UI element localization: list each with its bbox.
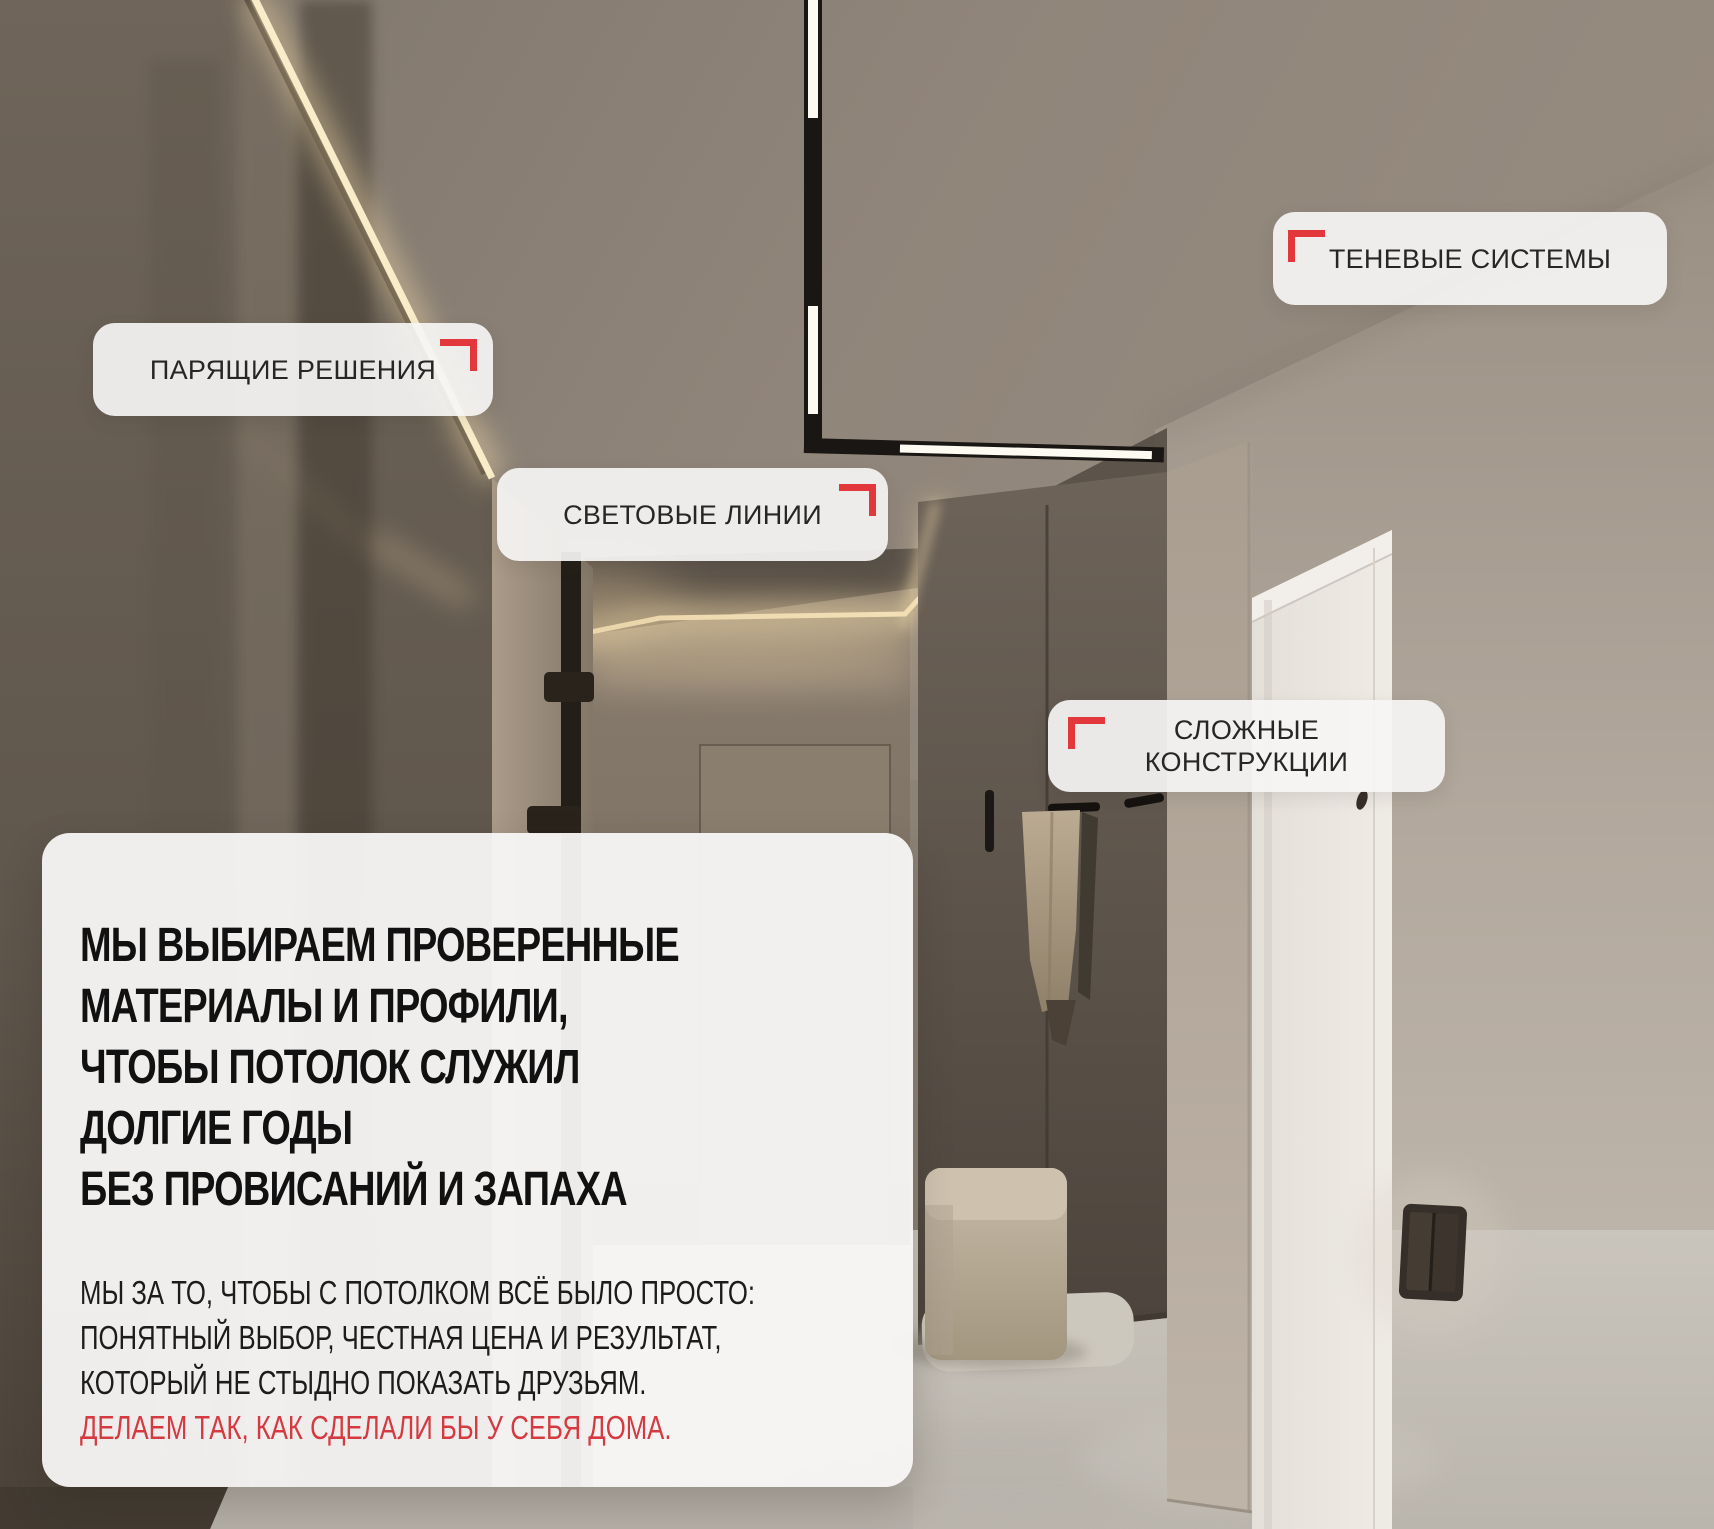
corner-bracket-icon (440, 339, 477, 371)
callout-light-lines: СВЕТОВЫЕ ЛИНИИ (497, 468, 888, 561)
callout-label: СЛОЖНЫЕ КОНСТРУКЦИИ (1145, 714, 1348, 778)
floor-under-panel (210, 1487, 913, 1529)
pouf (925, 1168, 1067, 1360)
callout-floating-solutions: ПАРЯЩИЕ РЕШЕНИЯ (93, 323, 493, 416)
white-door (1252, 530, 1392, 1529)
panel-body: МЫ ЗА ТО, ЧТОБЫ С ПОТОЛКОМ ВСЁ БЫЛО ПРОС… (80, 1270, 913, 1405)
panel-headline: МЫ ВЫБИРАЕМ ПРОВЕРЕННЫЕ МАТЕРИАЛЫ И ПРОФ… (80, 915, 913, 1220)
light-switch (1399, 1203, 1468, 1301)
callout-shadow-systems: ТЕНЕВЫЕ СИСТЕМЫ (1273, 212, 1667, 305)
promo-poster: ПАРЯЩИЕ РЕШЕНИЯ СВЕТОВЫЕ ЛИНИИ ТЕНЕВЫЕ С… (0, 0, 1714, 1529)
wall-column (1167, 440, 1252, 1512)
callout-label: СВЕТОВЫЕ ЛИНИИ (563, 499, 822, 531)
rod-clamp (544, 672, 594, 702)
callout-complex-constructions: СЛОЖНЫЕ КОНСТРУКЦИИ (1048, 700, 1445, 792)
wardrobe-handle (985, 790, 994, 852)
mirror-base-dark (0, 1487, 228, 1529)
corner-bracket-icon (839, 484, 876, 516)
panel-highlight: ДЕЛАЕМ ТАК, КАК СДЕЛАЛИ БЫ У СЕБЯ ДОМА. (80, 1405, 913, 1450)
panel-body-wrap: МЫ ЗА ТО, ЧТОБЫ С ПОТОЛКОМ ВСЁ БЫЛО ПРОС… (80, 1270, 913, 1450)
corner-bracket-icon (1288, 230, 1325, 262)
callout-label: ТЕНЕВЫЕ СИСТЕМЫ (1329, 243, 1611, 275)
rod-clamp (527, 806, 581, 834)
info-panel: МЫ ВЫБИРАЕМ ПРОВЕРЕННЫЕ МАТЕРИАЛЫ И ПРОФ… (42, 833, 913, 1487)
corner-bracket-icon (1068, 717, 1105, 749)
callout-label: ПАРЯЩИЕ РЕШЕНИЯ (150, 354, 436, 386)
